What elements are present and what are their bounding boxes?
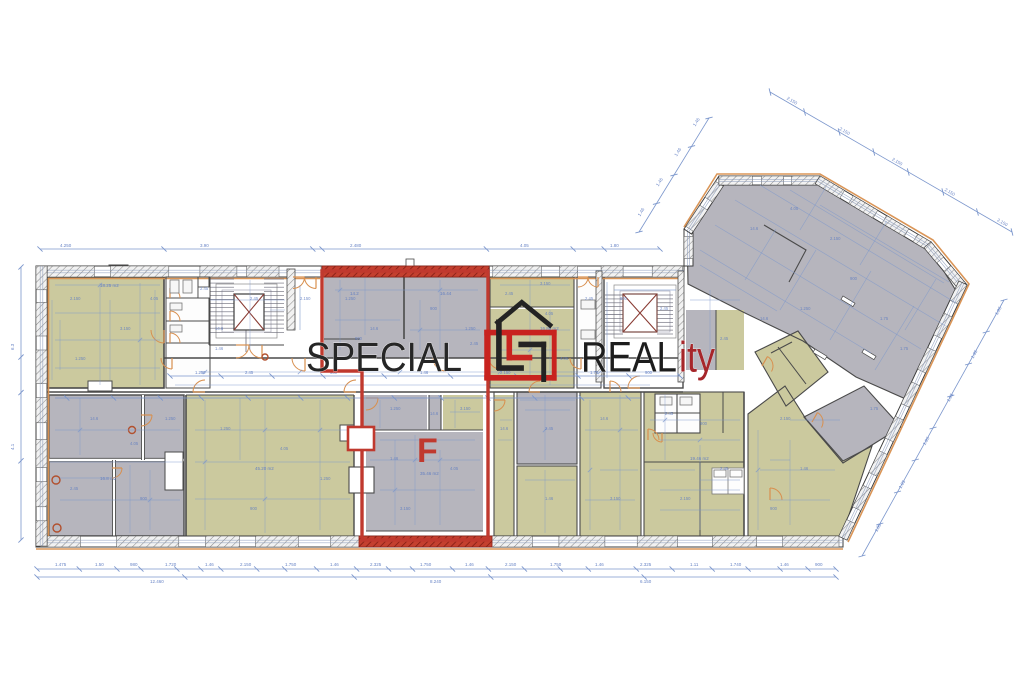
- svg-text:2.45: 2.45: [470, 341, 479, 346]
- svg-text:1.46: 1.46: [205, 562, 214, 567]
- svg-text:1.46: 1.46: [215, 346, 224, 351]
- svg-text:1.250: 1.250: [390, 406, 401, 411]
- svg-text:1.250: 1.250: [220, 426, 231, 431]
- svg-text:1.46: 1.46: [545, 496, 554, 501]
- svg-text:4.05: 4.05: [450, 466, 459, 471]
- svg-text:2.480: 2.480: [350, 243, 362, 248]
- svg-text:900: 900: [700, 421, 708, 426]
- svg-text:14.6: 14.6: [215, 326, 224, 331]
- svg-text:2.45: 2.45: [665, 411, 674, 416]
- svg-text:REAL: REAL: [581, 334, 677, 382]
- svg-text:1.250: 1.250: [345, 296, 356, 301]
- svg-text:900: 900: [140, 496, 148, 501]
- svg-text:2.45: 2.45: [250, 296, 259, 301]
- svg-text:2.325: 2.325: [640, 562, 652, 567]
- svg-text:2.45: 2.45: [70, 486, 79, 491]
- svg-text:2.150: 2.150: [780, 416, 791, 421]
- svg-text:2.150: 2.150: [505, 562, 517, 567]
- svg-text:1.475: 1.475: [55, 562, 67, 567]
- svg-text:900: 900: [620, 296, 628, 301]
- svg-text:12.460: 12.460: [150, 579, 164, 584]
- svg-text:6.150: 6.150: [640, 579, 652, 584]
- svg-text:2.150: 2.150: [300, 296, 311, 301]
- svg-text:1.250: 1.250: [320, 476, 331, 481]
- svg-text:14.6: 14.6: [500, 426, 509, 431]
- svg-text:3.150: 3.150: [540, 281, 551, 286]
- svg-text:35.46 m2: 35.46 m2: [420, 471, 439, 476]
- svg-text:4.250: 4.250: [60, 243, 72, 248]
- svg-text:900: 900: [430, 306, 438, 311]
- svg-text:900: 900: [770, 506, 778, 511]
- svg-text:1.250: 1.250: [75, 356, 86, 361]
- svg-text:8.240: 8.240: [430, 579, 442, 584]
- svg-text:4.05: 4.05: [545, 311, 554, 316]
- svg-text:45.20 m2: 45.20 m2: [255, 466, 274, 471]
- svg-text:14.6: 14.6: [430, 411, 439, 416]
- svg-text:2.45: 2.45: [585, 296, 594, 301]
- svg-text:14.6: 14.6: [90, 416, 99, 421]
- svg-text:1.46: 1.46: [595, 562, 604, 567]
- svg-text:4.05: 4.05: [520, 243, 529, 248]
- svg-text:1.46: 1.46: [780, 562, 789, 567]
- svg-text:1.250: 1.250: [800, 306, 811, 311]
- svg-text:1.46: 1.46: [800, 466, 809, 471]
- svg-text:2.45: 2.45: [505, 291, 514, 296]
- svg-text:4.1: 4.1: [10, 443, 15, 450]
- svg-text:4.05: 4.05: [560, 356, 569, 361]
- svg-text:2.150: 2.150: [680, 496, 691, 501]
- svg-text:1.740: 1.740: [730, 562, 742, 567]
- svg-text:3.90: 3.90: [200, 243, 209, 248]
- svg-text:1.50: 1.50: [95, 562, 104, 567]
- svg-text:4.05: 4.05: [280, 446, 289, 451]
- svg-text:1.250: 1.250: [465, 326, 476, 331]
- svg-text:14.6: 14.6: [600, 416, 609, 421]
- svg-text:1.250: 1.250: [165, 416, 176, 421]
- svg-text:2.45: 2.45: [245, 370, 254, 375]
- svg-text:4.05: 4.05: [150, 296, 159, 301]
- svg-text:900: 900: [250, 506, 258, 511]
- svg-text:900: 900: [815, 562, 823, 567]
- svg-text:14.6: 14.6: [760, 316, 769, 321]
- svg-text:F: F: [417, 432, 438, 470]
- svg-text:1.80: 1.80: [610, 243, 619, 248]
- svg-text:16.8 m2: 16.8 m2: [100, 476, 117, 481]
- svg-text:980: 980: [130, 562, 138, 567]
- svg-text:1.46: 1.46: [390, 456, 399, 461]
- svg-text:3.150: 3.150: [460, 406, 471, 411]
- svg-text:19.46 m2: 19.46 m2: [690, 456, 709, 461]
- svg-text:2.45: 2.45: [720, 466, 729, 471]
- svg-text:4.05: 4.05: [790, 206, 799, 211]
- svg-text:2.150: 2.150: [830, 236, 841, 241]
- svg-text:1.46: 1.46: [465, 562, 474, 567]
- svg-text:2.45: 2.45: [200, 286, 209, 291]
- svg-text:6.3: 6.3: [10, 343, 15, 350]
- svg-text:1.250: 1.250: [195, 370, 206, 375]
- svg-text:1.75: 1.75: [870, 406, 879, 411]
- svg-text:1.750: 1.750: [285, 562, 297, 567]
- svg-text:2.45: 2.45: [660, 306, 669, 311]
- svg-text:2.150: 2.150: [70, 296, 81, 301]
- svg-text:2.150: 2.150: [240, 562, 252, 567]
- svg-text:1.11: 1.11: [690, 562, 699, 567]
- svg-text:900: 900: [850, 276, 858, 281]
- svg-text:1.720: 1.720: [165, 562, 177, 567]
- svg-text:SPECIAL: SPECIAL: [306, 334, 462, 380]
- svg-text:1.46: 1.46: [330, 562, 339, 567]
- svg-text:16.44: 16.44: [440, 291, 452, 296]
- svg-text:2.325: 2.325: [370, 562, 382, 567]
- svg-text:2.45: 2.45: [545, 426, 554, 431]
- svg-text:1.75: 1.75: [900, 346, 909, 351]
- svg-text:18.25 m2: 18.25 m2: [100, 283, 119, 288]
- svg-text:14.6: 14.6: [750, 226, 759, 231]
- svg-text:ity: ity: [679, 334, 715, 382]
- svg-text:4.05: 4.05: [130, 441, 139, 446]
- svg-text:3.150: 3.150: [120, 326, 131, 331]
- svg-text:3.150: 3.150: [610, 496, 621, 501]
- svg-text:2.45: 2.45: [720, 336, 729, 341]
- svg-text:3.150: 3.150: [400, 506, 411, 511]
- svg-text:1.750: 1.750: [550, 562, 562, 567]
- svg-text:14.6: 14.6: [370, 326, 379, 331]
- svg-text:1.750: 1.750: [420, 562, 432, 567]
- svg-text:1.75: 1.75: [880, 316, 889, 321]
